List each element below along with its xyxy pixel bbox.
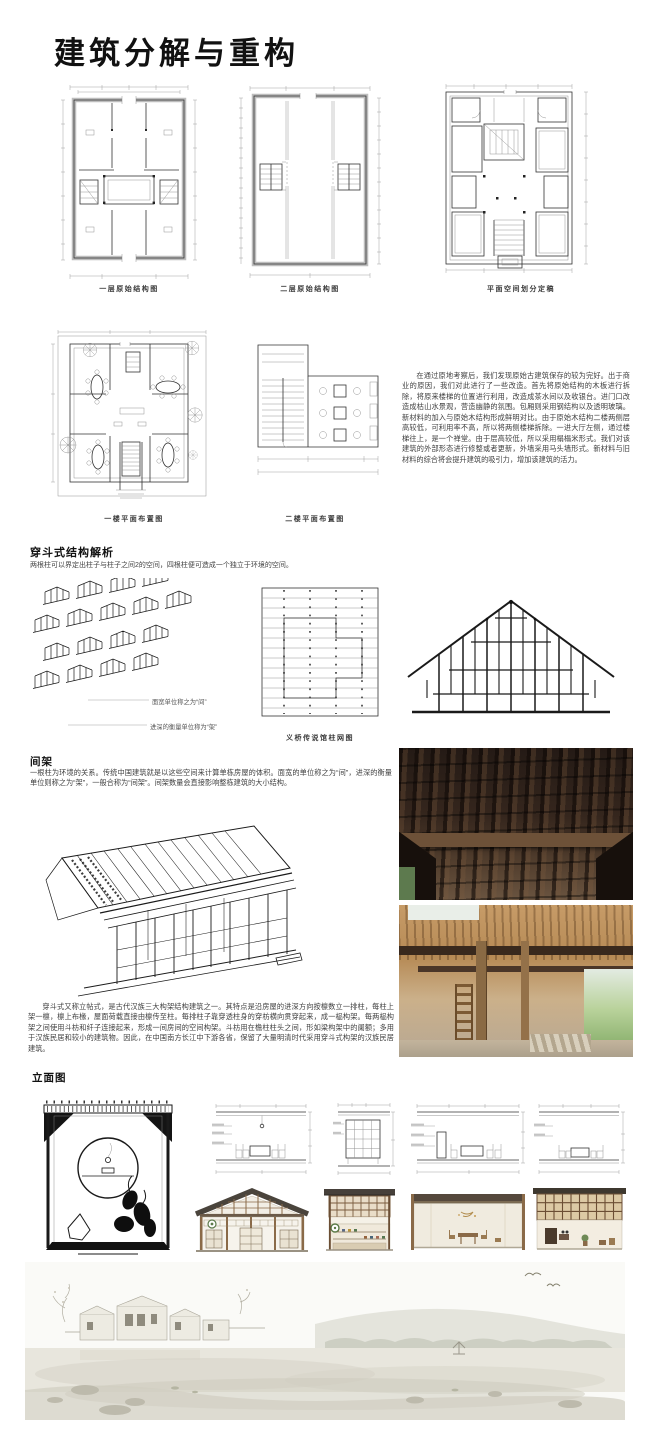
section-heading-jianjia: 间架	[30, 754, 53, 769]
section-subtitle-chuandou: 两根柱可以界定出柱子与柱子之间2的空间，四根柱便可造成一个独立于环境的空间。	[30, 560, 460, 570]
photo-foliage	[399, 867, 415, 900]
plan-first-floor-original	[58, 82, 200, 282]
poster-board: 建筑分解与重构 一层原始结构图 二层原始结构图	[0, 0, 650, 1444]
cad-elevation-2-shelf	[332, 1100, 396, 1180]
photo-opening-greenery	[584, 969, 633, 1042]
label-jian: 面宽单位称之为“间”	[152, 697, 207, 706]
caption-plan-1f-original: 一层原始结构图	[58, 284, 200, 294]
caption-plan-division: 平面空间划分定稿	[436, 284, 606, 294]
caption-plan-2f-original: 二层原始结构图	[236, 284, 384, 294]
photo-skylight	[408, 905, 478, 920]
plan-1f-layout	[50, 330, 218, 512]
truss-array-axonometric	[28, 578, 263, 746]
caption-column-grid: 义桥传说馆柱网图	[254, 733, 386, 743]
cad-elevation-3	[409, 1100, 527, 1180]
label-jia: 进深的衡量单位称为“架”	[150, 722, 217, 731]
ink-courtyard-drawing	[38, 1096, 180, 1258]
photo-timber-interior	[399, 905, 633, 1057]
chuandou-description: 穿斗式又称立帖式，是古代汉族三大构架结构建筑之一。其特点是沿房屋的进深方向按檩数…	[28, 1002, 394, 1054]
render-facade-lattice	[324, 1186, 395, 1258]
timber-hall-axonometric	[28, 810, 343, 1010]
plan-2f-layout	[244, 334, 386, 484]
section-heading-chuandou: 穿斗式结构解析	[30, 544, 114, 560]
truss-elevation-drawing	[404, 588, 618, 722]
render-section-hall	[409, 1186, 527, 1258]
photo-beam-upper	[399, 946, 633, 955]
photo-post	[476, 941, 485, 1050]
render-facade-teahouse	[533, 1186, 626, 1258]
page-title: 建筑分解与重构	[54, 28, 299, 73]
caption-plan-1f-layout: 一楼平面布置图	[50, 514, 218, 524]
render-facade-gable	[192, 1186, 312, 1258]
section-heading-elevation: 立面图	[32, 1070, 67, 1085]
jianjia-paragraph: 一根柱为环境的关系。传统中国建筑就是以这些空间来计算单栋房屋的体积。面宽的单位称…	[30, 768, 392, 789]
cad-elevation-4	[533, 1100, 626, 1180]
photo-timber-roof-underside	[399, 748, 633, 900]
plan-space-division	[436, 80, 606, 282]
plan-second-floor-original	[236, 82, 384, 282]
column-grid-plan	[254, 582, 386, 732]
photo-lumber-pile	[530, 1034, 591, 1052]
photo-ladder	[455, 984, 473, 1045]
ink-wash-landscape	[25, 1262, 625, 1420]
cad-elevation-1	[210, 1100, 312, 1180]
photo-floor	[399, 1040, 633, 1057]
photo-main-beam	[399, 833, 633, 847]
photo-post-2	[521, 941, 529, 1050]
renovation-paragraph: 在通过原地考察后，我们发现原始古建筑保存的较为完好。出于商业的原因，我们对此进行…	[402, 371, 630, 465]
caption-plan-2f-layout: 二楼平面布置图	[244, 514, 386, 524]
